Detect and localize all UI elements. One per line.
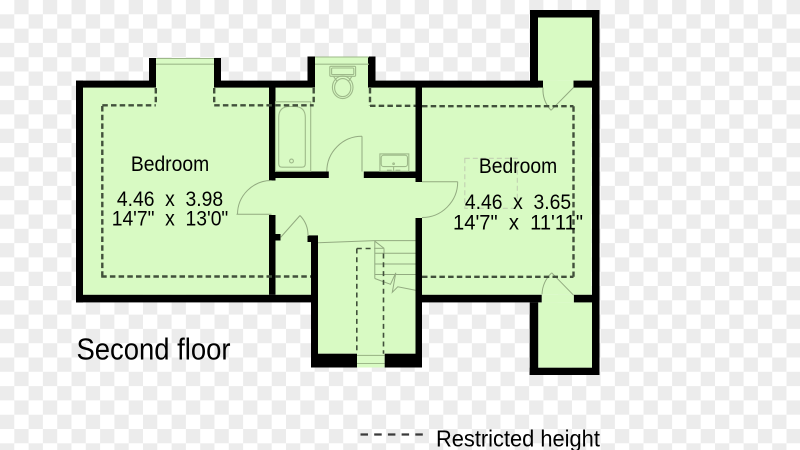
svg-text:Bedroom: Bedroom — [131, 153, 209, 176]
svg-text:Second floor: Second floor — [77, 333, 231, 367]
svg-text:Restricted height: Restricted height — [436, 426, 601, 450]
svg-text:Bedroom: Bedroom — [479, 155, 557, 178]
svg-text:14'7" x 13'0": 14'7" x 13'0" — [112, 208, 229, 231]
svg-text:14'7" x 11'11": 14'7" x 11'11" — [453, 211, 583, 234]
